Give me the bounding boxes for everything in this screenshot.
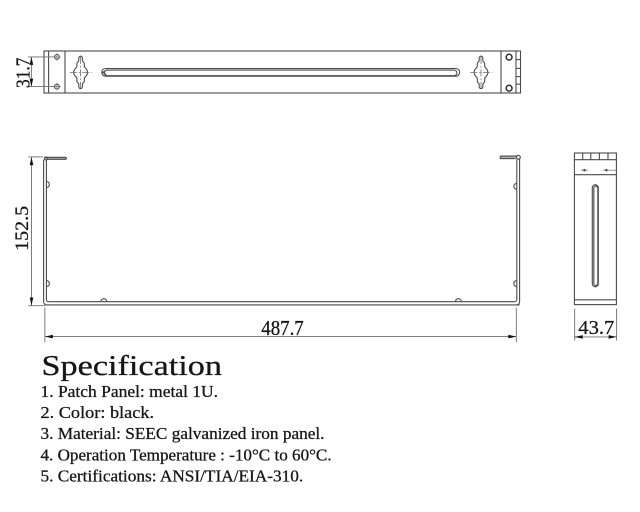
svg-text:152.5: 152.5 xyxy=(12,206,33,251)
svg-text:3. Material: SEEC galvanized i: 3. Material: SEEC galvanized iron panel. xyxy=(41,424,325,443)
svg-text:2. Color: black.: 2. Color: black. xyxy=(41,403,155,422)
svg-text:4. Operation Temperature : -10: 4. Operation Temperature : -10°C to 60°C… xyxy=(41,445,332,464)
svg-text:Specification: Specification xyxy=(42,351,223,382)
svg-text:5. Certifications: ANSI/TIA/E: 5. Certifications: ANSI/TIA/EIA-310. xyxy=(41,466,304,485)
svg-text:487.7: 487.7 xyxy=(261,316,304,340)
svg-text:31.7: 31.7 xyxy=(13,58,35,88)
svg-text:43.7: 43.7 xyxy=(578,317,614,339)
svg-text:1. Patch Panel: metal 1U.: 1. Patch Panel: metal 1U. xyxy=(41,382,219,401)
